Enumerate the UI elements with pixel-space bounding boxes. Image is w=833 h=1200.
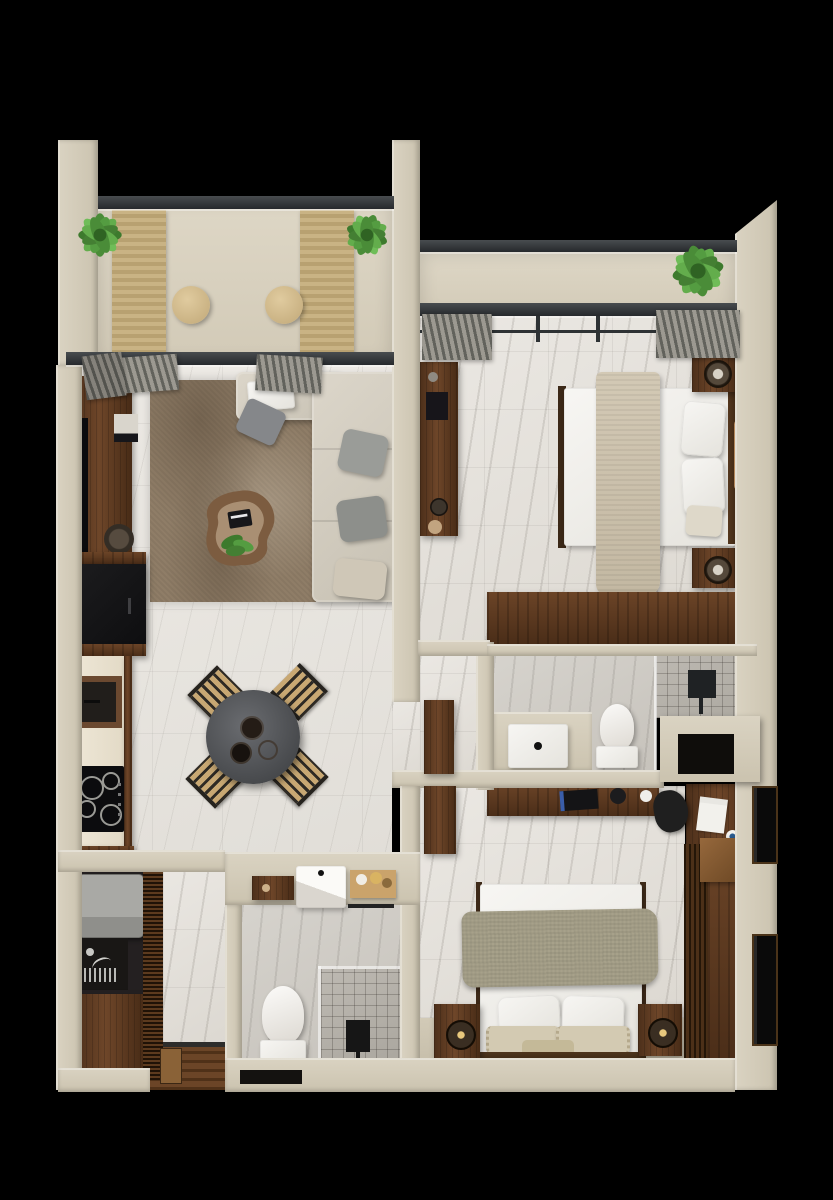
- toilet-bowl: [600, 704, 634, 750]
- entry-hall-floor: [163, 856, 225, 1046]
- storage-niche-opening: [678, 734, 734, 774]
- potted-plant: [68, 200, 132, 270]
- toilet-tank: [596, 746, 638, 768]
- master-wardrobe: [487, 592, 757, 644]
- toilet2-tank: [260, 1040, 306, 1060]
- table-lamp: [704, 556, 732, 584]
- shower-stem: [699, 698, 703, 714]
- kitchen-faucet: [84, 700, 100, 703]
- coffee-table: [194, 484, 284, 572]
- wardrobe2-top-cabinet: [700, 838, 736, 882]
- counter-wood-edge: [124, 656, 132, 852]
- sofa-pillow-gray: [335, 495, 388, 543]
- bathroom-wall: [476, 642, 494, 790]
- table-lamp: [648, 1018, 678, 1048]
- bed-pillow: [680, 400, 727, 457]
- side-stool: [265, 286, 303, 324]
- living-curtain: [81, 352, 126, 401]
- table-lamp: [446, 1020, 476, 1050]
- washer: [78, 874, 144, 938]
- switch-dot: [276, 884, 282, 890]
- master-curtain-left: [422, 314, 492, 360]
- serving-bowl: [258, 740, 278, 760]
- shower-glass: [654, 656, 657, 772]
- drying-rack: [84, 968, 118, 982]
- door-panel-open: [424, 786, 456, 854]
- utility-faucet-knob: [86, 948, 94, 956]
- bathroom2-faucet: [318, 870, 324, 876]
- cooktop-knobs: [118, 776, 121, 816]
- switch-panel: [252, 876, 294, 900]
- table-lamp: [704, 360, 732, 388]
- side-stool: [172, 286, 210, 324]
- burner: [80, 776, 104, 800]
- desk-paper: [696, 796, 728, 833]
- cabinet-handle: [128, 598, 131, 614]
- bed2-sage-blanket: [461, 908, 658, 987]
- console-books: [114, 414, 138, 442]
- vanity-faucet: [534, 742, 542, 750]
- master-curtain-right: [656, 310, 740, 358]
- potted-plant: [653, 225, 744, 317]
- utility-north-wall: [58, 850, 225, 872]
- toiletry-jar: [356, 874, 367, 885]
- console-bowl: [428, 520, 442, 534]
- side-window: [752, 934, 778, 1046]
- toilet2-bowl: [262, 986, 304, 1044]
- wall-band: [418, 640, 490, 656]
- shelf-gadget: [559, 789, 598, 812]
- towel-bar: [348, 904, 394, 908]
- shower2-fixture: [346, 1020, 370, 1052]
- bed-pillow-small: [685, 505, 723, 537]
- threshold-recess: [240, 1070, 302, 1084]
- sofa-pillow-beige: [332, 557, 388, 600]
- outer-wall-left: [56, 365, 82, 1090]
- bathroom2-left-wall: [225, 905, 242, 1065]
- shelf-speaker: [610, 788, 626, 804]
- console-tablet: [426, 392, 448, 420]
- bedroom2-left-wall: [400, 786, 420, 1062]
- utility-cabinet: [74, 994, 144, 1068]
- bifold-glass-panels: [255, 354, 323, 393]
- shelf-roll: [640, 790, 652, 802]
- entry-door: [160, 1048, 182, 1084]
- wall-band: [487, 644, 757, 656]
- serving-bowl: [230, 742, 252, 764]
- console-bowl: [430, 498, 448, 516]
- shower-head: [688, 670, 716, 698]
- door-panel-open: [424, 700, 454, 774]
- side-window: [752, 786, 778, 864]
- switch-dial: [262, 884, 270, 892]
- toiletry-jar: [382, 878, 392, 888]
- serving-bowl: [240, 716, 264, 740]
- outer-wall-bottom-left: [58, 1068, 150, 1092]
- toiletry-jar: [370, 872, 382, 884]
- floor-plan-render: [0, 0, 833, 1200]
- bed-throw-blanket: [596, 372, 660, 596]
- decor-bowl: [104, 524, 134, 554]
- console-knob: [428, 372, 438, 382]
